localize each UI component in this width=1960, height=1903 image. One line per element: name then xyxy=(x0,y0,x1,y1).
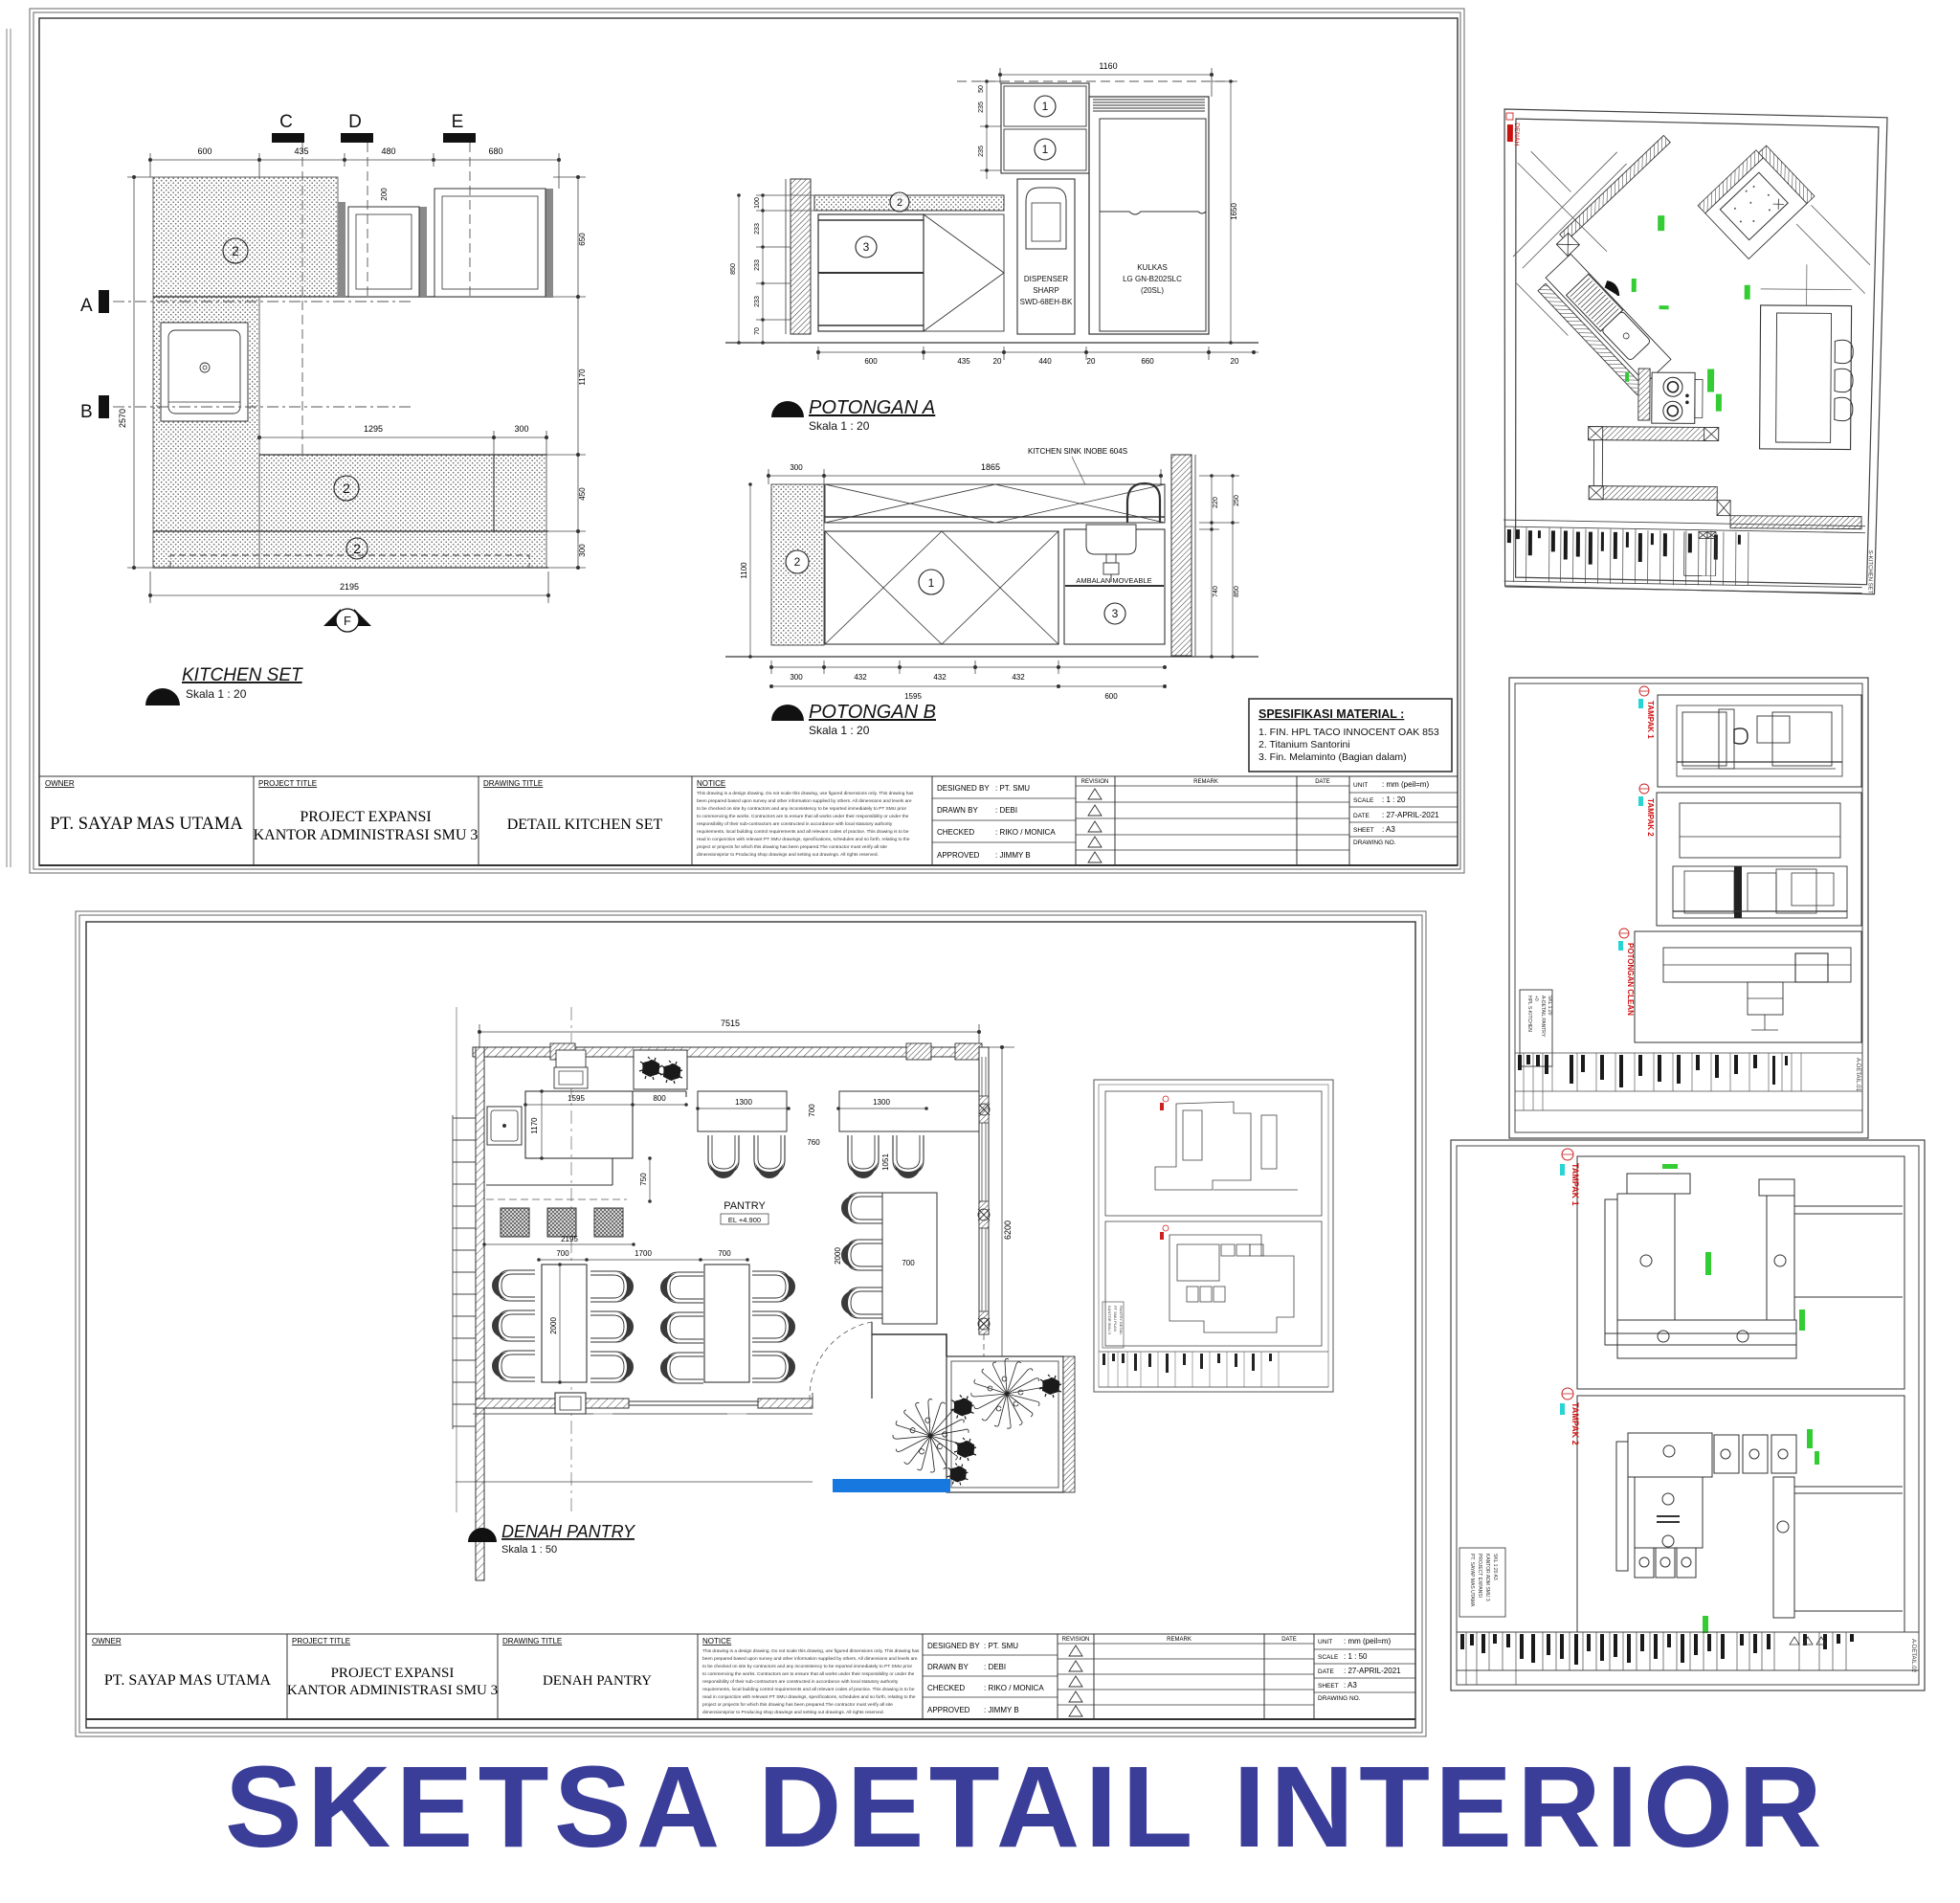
svg-text:1650: 1650 xyxy=(1230,203,1238,220)
svg-text:PANTRY: PANTRY xyxy=(724,1200,766,1212)
svg-text:KANTOR ADMINISTRASI SMU 3: KANTOR ADMINISTRASI SMU 3 xyxy=(254,827,479,843)
svg-text:235: 235 xyxy=(978,101,985,113)
svg-text:680: 680 xyxy=(488,146,502,156)
svg-text:2: 2 xyxy=(897,197,902,209)
svg-text:+0: +0 xyxy=(1533,996,1539,1001)
svg-text:760: 760 xyxy=(807,1138,820,1147)
svg-text:F: F xyxy=(344,614,351,628)
svg-text:50: 50 xyxy=(978,85,985,93)
svg-text:This drawing is a design drawi: This drawing is a design drawing. Do not… xyxy=(702,1648,920,1654)
svg-text:: mm (peil=m): : mm (peil=m) xyxy=(1344,1637,1391,1646)
svg-text:SKL 1:20: SKL 1:20 xyxy=(1547,996,1552,1016)
svg-text:PROJECT EXPANSI: PROJECT EXPANSI xyxy=(1477,1554,1482,1598)
svg-text:SPESIFIKASI MATERIAL :: SPESIFIKASI MATERIAL : xyxy=(1258,707,1404,721)
svg-text:NOTICE: NOTICE xyxy=(697,779,725,788)
svg-text:PROJECT EXPANSI: PROJECT EXPANSI xyxy=(300,809,431,825)
svg-text:650: 650 xyxy=(578,233,587,246)
svg-text:: 27-APRIL-2021: : 27-APRIL-2021 xyxy=(1344,1667,1401,1675)
svg-text:A: A xyxy=(80,296,93,316)
svg-text:SWD-68EH-BK: SWD-68EH-BK xyxy=(1020,298,1073,306)
svg-text:800: 800 xyxy=(653,1094,666,1103)
svg-text:SHEET: SHEET xyxy=(1353,827,1374,834)
svg-text:SHARP: SHARP xyxy=(1033,286,1059,295)
svg-text:480: 480 xyxy=(381,146,395,156)
svg-text:B: B xyxy=(80,402,93,422)
svg-text:20: 20 xyxy=(993,357,1002,366)
svg-text:: 27-APRIL-2021: : 27-APRIL-2021 xyxy=(1382,811,1439,819)
svg-text:: DEBI: : DEBI xyxy=(984,1663,1006,1671)
svg-text:: RIKO / MONICA: : RIKO / MONICA xyxy=(984,1684,1044,1692)
svg-text:requirements, local building c: requirements, local building control req… xyxy=(697,829,909,835)
svg-text:660: 660 xyxy=(1141,357,1154,366)
svg-text:DATE: DATE xyxy=(1318,1668,1335,1675)
svg-text:KANTOR ADMINISTRASI SMU 3: KANTOR ADMINISTRASI SMU 3 xyxy=(287,1683,498,1698)
svg-text:PROJECT EXPANSI: PROJECT EXPANSI xyxy=(331,1666,455,1681)
svg-text:SCALE: SCALE xyxy=(1318,1654,1339,1661)
svg-text:2. Titanium Santorini: 2. Titanium Santorini xyxy=(1258,739,1350,750)
svg-text:UNIT: UNIT xyxy=(1318,1639,1332,1646)
svg-text:: 1 : 20: : 1 : 20 xyxy=(1382,795,1406,804)
svg-text:DRAWING TITLE: DRAWING TITLE xyxy=(483,779,543,788)
svg-text:OWNER: OWNER xyxy=(45,779,75,788)
svg-text:TAMPAK 2: TAMPAK 2 xyxy=(1570,1402,1580,1445)
svg-text:PROJECT TITLE: PROJECT TITLE xyxy=(258,779,317,788)
svg-text:been prepared based upon surve: been prepared based upon survey and othe… xyxy=(697,798,912,804)
svg-text:200: 200 xyxy=(380,188,389,201)
svg-text:LG GN-B202SLC: LG GN-B202SLC xyxy=(1123,275,1182,283)
svg-text:REMARK: REMARK xyxy=(1167,1637,1192,1643)
svg-text:This drawing is a design drawi: This drawing is a design drawing. Do not… xyxy=(697,791,914,796)
svg-text:6200: 6200 xyxy=(1003,1220,1013,1240)
svg-text:700: 700 xyxy=(718,1249,731,1258)
svg-text:1100: 1100 xyxy=(740,562,748,579)
svg-text:read in conjunction with relev: read in conjunction with relevant PT SMU… xyxy=(697,837,910,842)
svg-text:1300: 1300 xyxy=(735,1098,752,1107)
svg-text:PROJECT TITLE: PROJECT TITLE xyxy=(292,1637,350,1646)
svg-text:20: 20 xyxy=(1087,357,1096,366)
svg-text:1170: 1170 xyxy=(530,1117,539,1134)
svg-text:DRAWN BY: DRAWN BY xyxy=(927,1663,969,1671)
svg-text:REVISION: REVISION xyxy=(1081,779,1109,785)
svg-text:CHECKED: CHECKED xyxy=(927,1684,965,1692)
svg-text:DETAIL KITCHEN SET: DETAIL KITCHEN SET xyxy=(507,817,663,833)
svg-text:600: 600 xyxy=(197,146,212,156)
svg-text:600: 600 xyxy=(1104,692,1118,701)
svg-text:1170: 1170 xyxy=(578,369,587,386)
svg-text:DATE: DATE xyxy=(1281,1637,1297,1643)
svg-text:DESIGNED BY: DESIGNED BY xyxy=(927,1642,980,1650)
svg-text:2195: 2195 xyxy=(561,1235,578,1243)
svg-text:7515: 7515 xyxy=(721,1019,740,1028)
svg-text:2: 2 xyxy=(343,481,350,496)
svg-text:1: 1 xyxy=(928,576,935,590)
svg-text:E: E xyxy=(452,112,464,132)
svg-text:EL +4.900: EL +4.900 xyxy=(728,1216,761,1224)
svg-text:DENAH: DENAH xyxy=(1513,123,1520,146)
svg-text:POTONGAN CLEAN: POTONGAN CLEAN xyxy=(1626,943,1635,1016)
svg-text:: DEBI: : DEBI xyxy=(995,806,1017,815)
svg-text:UNIT: UNIT xyxy=(1353,782,1368,789)
svg-text:to commencing the works. Contr: to commencing the works. Contractors are… xyxy=(702,1671,915,1677)
svg-text:Skala 1 : 20: Skala 1 : 20 xyxy=(809,419,870,433)
svg-text:SKETSA DETAIL INTERIOR: SKETSA DETAIL INTERIOR xyxy=(225,1741,1827,1871)
svg-text:S-KITCHEN SET: S-KITCHEN SET xyxy=(1867,550,1873,594)
svg-text:600: 600 xyxy=(864,357,878,366)
svg-text:APPROVED: APPROVED xyxy=(937,851,980,860)
svg-text:235: 235 xyxy=(978,146,985,157)
svg-text:250: 250 xyxy=(1234,495,1240,506)
svg-text:850: 850 xyxy=(730,263,737,275)
svg-text:2000: 2000 xyxy=(834,1247,842,1265)
svg-text:KITCHEN SINK INOBE 604S: KITCHEN SINK INOBE 604S xyxy=(1028,447,1127,456)
svg-text:Skala 1 : 20: Skala 1 : 20 xyxy=(186,687,247,701)
svg-text:1700: 1700 xyxy=(635,1249,652,1258)
svg-text:: 1 : 50: : 1 : 50 xyxy=(1344,1652,1368,1661)
svg-text:AMBALAN MOVEABLE: AMBALAN MOVEABLE xyxy=(1076,576,1151,585)
svg-text:1160: 1160 xyxy=(1099,61,1117,71)
svg-text:220: 220 xyxy=(1213,497,1219,508)
svg-text:DRAWN BY: DRAWN BY xyxy=(937,806,978,815)
svg-text:1595: 1595 xyxy=(904,692,922,701)
svg-text:POTONGAN B: POTONGAN B xyxy=(809,702,936,723)
svg-text:2: 2 xyxy=(232,243,239,258)
svg-text:750: 750 xyxy=(639,1173,648,1186)
svg-text:Skala 1 : 20: Skala 1 : 20 xyxy=(809,724,870,737)
svg-text:: PT. SMU: : PT. SMU xyxy=(995,784,1030,793)
svg-text:read in conjunction with relev: read in conjunction with relevant PT SMU… xyxy=(702,1694,916,1700)
svg-text:DATE: DATE xyxy=(1353,813,1370,819)
svg-text:435: 435 xyxy=(957,357,970,366)
svg-text:: A3: : A3 xyxy=(1382,825,1395,834)
svg-text:1300: 1300 xyxy=(873,1098,890,1107)
svg-text:: A3: : A3 xyxy=(1344,1681,1357,1690)
svg-text:: mm (peil=m): : mm (peil=m) xyxy=(1382,780,1429,789)
svg-text:700: 700 xyxy=(556,1249,569,1258)
svg-text:DATE: DATE xyxy=(1315,779,1330,785)
svg-text:: JIMMY B: : JIMMY B xyxy=(995,851,1031,860)
svg-text:A-DETAIL.01: A-DETAIL.01 xyxy=(1855,1058,1860,1092)
svg-text:: JIMMY B: : JIMMY B xyxy=(984,1706,1019,1714)
svg-text:440: 440 xyxy=(1038,357,1052,366)
svg-text:432: 432 xyxy=(933,673,947,682)
svg-text:1: 1 xyxy=(1042,143,1049,156)
svg-text:PT. SAYAP MAS UTAMA: PT. SAYAP MAS UTAMA xyxy=(1469,1554,1475,1607)
svg-text:DRAWING TITLE: DRAWING TITLE xyxy=(502,1637,562,1646)
svg-text:233: 233 xyxy=(754,296,761,307)
svg-text:PT. SAYAP MAS UTAMA: PT. SAYAP MAS UTAMA xyxy=(104,1672,272,1689)
svg-text:1595: 1595 xyxy=(568,1094,585,1103)
svg-text:850: 850 xyxy=(1234,586,1240,597)
svg-text:300: 300 xyxy=(578,544,587,557)
svg-text:SCALE: SCALE xyxy=(1353,797,1374,804)
svg-text:TAMPAK 1: TAMPAK 1 xyxy=(1646,701,1655,739)
svg-text:dimensionsprior to Producing s: dimensionsprior to Producing shop drawin… xyxy=(697,852,879,858)
svg-text:D: D xyxy=(348,112,362,132)
svg-text:700: 700 xyxy=(808,1104,816,1117)
svg-text:KANTOR ADM SMU 3: KANTOR ADM SMU 3 xyxy=(1484,1554,1490,1601)
svg-text:HPL S-KITCHEN: HPL S-KITCHEN xyxy=(1526,996,1532,1032)
svg-text:432: 432 xyxy=(854,673,867,682)
svg-text:KANTOR SMU 3: KANTOR SMU 3 xyxy=(1107,1306,1112,1335)
svg-text:KITCHEN SET: KITCHEN SET xyxy=(182,665,303,685)
svg-text:TAMPAK 2: TAMPAK 2 xyxy=(1646,798,1655,837)
svg-text:233: 233 xyxy=(754,259,761,271)
svg-text:APPROVED: APPROVED xyxy=(927,1706,970,1714)
svg-text:300: 300 xyxy=(514,424,528,434)
svg-text:1: 1 xyxy=(1042,100,1049,113)
svg-text:dimensionsprior to Producing s: dimensionsprior to Producing shop drawin… xyxy=(702,1710,884,1715)
svg-text:REVISION: REVISION xyxy=(1062,1637,1090,1643)
svg-text:PANTRY DETAIL: PANTRY DETAIL xyxy=(1119,1306,1124,1335)
svg-text:DRAWING NO.: DRAWING NO. xyxy=(1353,840,1396,846)
svg-text:project or projects for which: project or projects for which this drawi… xyxy=(702,1702,893,1708)
svg-text:450: 450 xyxy=(578,487,587,501)
svg-text:700: 700 xyxy=(902,1259,915,1267)
svg-text:2195: 2195 xyxy=(340,582,359,592)
svg-text:to be checked on site by contr: to be checked on site by contractors and… xyxy=(697,806,906,812)
svg-text:POTONGAN A: POTONGAN A xyxy=(809,397,935,418)
svg-text:300: 300 xyxy=(790,673,803,682)
svg-text:DRAWING NO.: DRAWING NO. xyxy=(1318,1695,1361,1702)
svg-text:TAMPAK 1: TAMPAK 1 xyxy=(1570,1163,1580,1206)
svg-text:3: 3 xyxy=(1112,607,1119,620)
svg-text:to be checked on site by contr: to be checked on site by contractors and… xyxy=(702,1664,912,1669)
svg-text:2: 2 xyxy=(353,541,361,556)
svg-text:PT SMU PLAN: PT SMU PLAN xyxy=(1113,1306,1118,1332)
svg-text:432: 432 xyxy=(1012,673,1025,682)
svg-text:CHECKED: CHECKED xyxy=(937,828,974,837)
svg-text:: RIKO / MONICA: : RIKO / MONICA xyxy=(995,828,1056,837)
svg-text:KULKAS: KULKAS xyxy=(1137,263,1168,272)
svg-text:435: 435 xyxy=(294,146,308,156)
svg-text:PT. SAYAP MAS UTAMA: PT. SAYAP MAS UTAMA xyxy=(50,815,243,834)
svg-text:been prepared based upon surve: been prepared based upon survey and othe… xyxy=(702,1656,918,1662)
svg-text:DENAH PANTRY: DENAH PANTRY xyxy=(501,1522,636,1541)
svg-text:to commencing the works. Contr: to commencing the works. Contractors are… xyxy=(697,814,909,819)
svg-text:A-DETAIL.02: A-DETAIL.02 xyxy=(1910,1639,1916,1673)
svg-text:1051: 1051 xyxy=(881,1153,890,1171)
svg-text:requirements, local building c: requirements, local building control req… xyxy=(702,1687,915,1692)
svg-text:(20SL): (20SL) xyxy=(1141,286,1164,295)
svg-text:OWNER: OWNER xyxy=(92,1637,122,1646)
svg-text:740: 740 xyxy=(1213,586,1219,597)
svg-text:1865: 1865 xyxy=(981,462,1000,472)
svg-text:project or projects for which: project or projects for which this drawi… xyxy=(697,844,887,850)
svg-text:2: 2 xyxy=(794,555,801,569)
svg-text:1. FIN. HPL TACO INNOCENT OAK: 1. FIN. HPL TACO INNOCENT OAK 853 xyxy=(1258,727,1439,738)
svg-text:SKL 1:20 A3: SKL 1:20 A3 xyxy=(1492,1554,1498,1580)
svg-text:C: C xyxy=(279,112,293,132)
svg-text:A-DETAIL PANTRY: A-DETAIL PANTRY xyxy=(1540,996,1546,1038)
svg-text:DENAH PANTRY: DENAH PANTRY xyxy=(543,1673,652,1689)
svg-text:2570: 2570 xyxy=(118,409,127,428)
svg-text:300: 300 xyxy=(790,463,803,472)
svg-text:DISPENSER: DISPENSER xyxy=(1024,275,1068,283)
svg-text:: PT. SMU: : PT. SMU xyxy=(984,1642,1018,1650)
svg-text:3: 3 xyxy=(863,240,870,254)
svg-text:233: 233 xyxy=(754,223,761,235)
svg-text:3. Fin. Melaminto (Bagian dala: 3. Fin. Melaminto (Bagian dalam) xyxy=(1258,751,1407,763)
svg-text:20: 20 xyxy=(1231,357,1239,366)
svg-text:2000: 2000 xyxy=(549,1317,558,1334)
svg-text:REMARK: REMARK xyxy=(1193,779,1218,785)
svg-text:SHEET: SHEET xyxy=(1318,1683,1339,1690)
svg-text:responsibility of their sub-co: responsibility of their sub-contractors … xyxy=(702,1679,899,1685)
svg-text:NOTICE: NOTICE xyxy=(702,1637,731,1646)
svg-text:DESIGNED BY: DESIGNED BY xyxy=(937,784,990,793)
svg-text:70: 70 xyxy=(754,327,761,335)
svg-text:responsibility of their sub-co: responsibility of their sub-contractors … xyxy=(697,821,893,827)
svg-text:Skala 1 : 50: Skala 1 : 50 xyxy=(501,1544,557,1556)
svg-text:1295: 1295 xyxy=(364,424,383,434)
svg-text:100: 100 xyxy=(754,197,761,209)
